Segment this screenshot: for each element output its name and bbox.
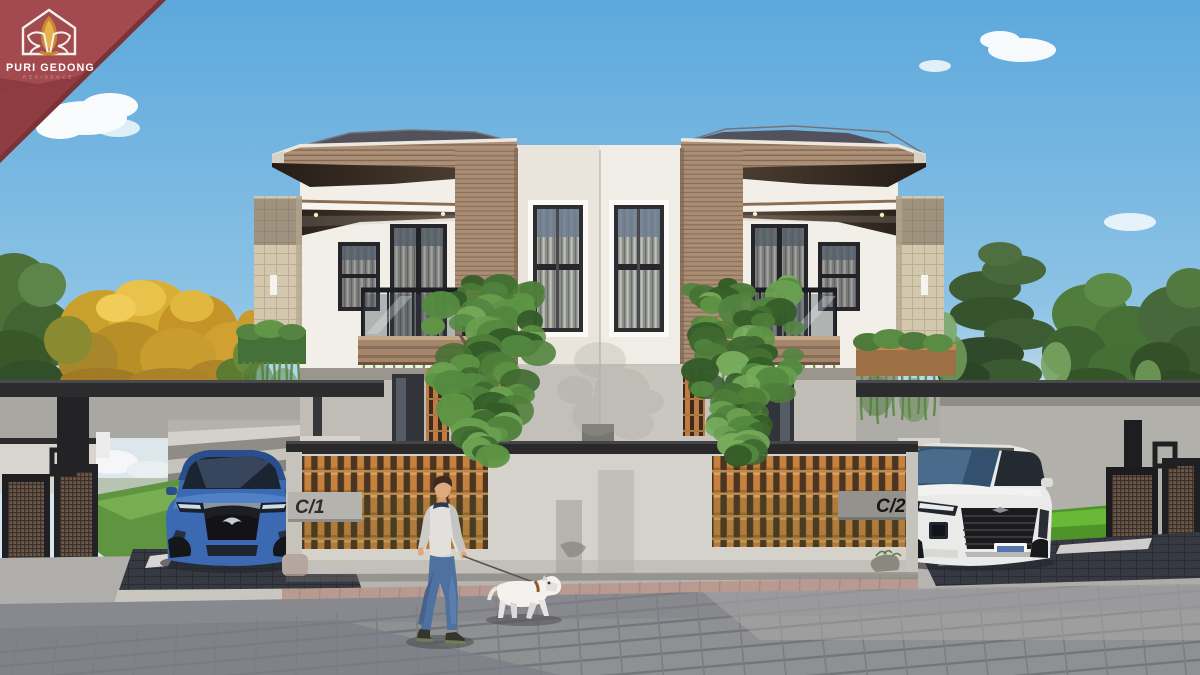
svg-text:C/1: C/1 (295, 497, 325, 518)
svg-text:RESIDENCE: RESIDENCE (23, 75, 74, 80)
svg-text:C/2: C/2 (876, 496, 906, 517)
svg-text:PURI GEDONG: PURI GEDONG (6, 62, 95, 74)
